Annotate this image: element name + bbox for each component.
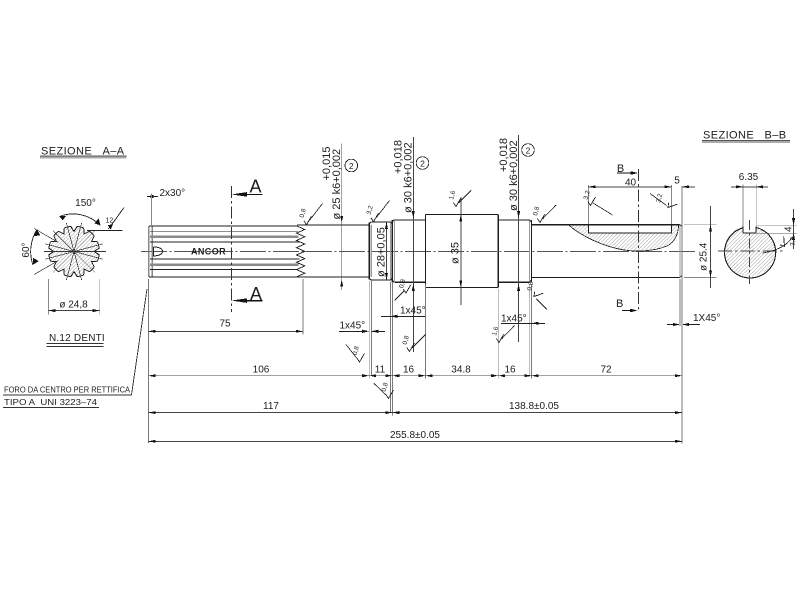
svg-text:1X45°: 1X45° [693, 313, 720, 324]
svg-text:TIPO A UNI 3223–74: TIPO A UNI 3223–74 [4, 398, 98, 407]
svg-text:72: 72 [600, 365, 612, 376]
svg-text:255.8±0.05: 255.8±0.05 [390, 430, 440, 441]
svg-text:40: 40 [625, 178, 637, 189]
svg-text:150°: 150° [75, 198, 96, 209]
svg-text:A: A [249, 177, 261, 197]
svg-text:ANCOR: ANCOR [191, 246, 226, 256]
svg-text:2: 2 [349, 161, 354, 171]
svg-text:2: 2 [526, 145, 531, 155]
svg-text:117: 117 [263, 401, 279, 412]
svg-text:34.8: 34.8 [451, 365, 471, 376]
svg-text:FORO DA CENTRO PER RETTIFICA: FORO DA CENTRO PER RETTIFICA [4, 386, 131, 395]
svg-text:+0,015: +0,015 [321, 147, 333, 181]
svg-text:1x45°: 1x45° [400, 306, 426, 317]
svg-text:106: 106 [253, 365, 270, 376]
svg-text:60°: 60° [21, 242, 32, 257]
svg-text:ø 25.4: ø 25.4 [699, 242, 710, 271]
svg-text:5: 5 [674, 176, 680, 187]
svg-text:+0,018: +0,018 [393, 140, 405, 174]
svg-text:ø 28+0,05: ø 28+0,05 [376, 227, 388, 277]
svg-text:B: B [616, 298, 623, 310]
svg-text:1x45°: 1x45° [340, 321, 366, 332]
svg-text:138.8±0.05: 138.8±0.05 [509, 401, 559, 412]
svg-text:75: 75 [219, 319, 231, 330]
svg-text:16: 16 [403, 365, 415, 376]
svg-text:16: 16 [504, 365, 516, 376]
svg-text:4: 4 [784, 226, 795, 232]
svg-text:3,2: 3,2 [790, 237, 797, 246]
svg-text:+0,018: +0,018 [498, 138, 510, 172]
svg-text:11: 11 [375, 365, 386, 376]
svg-text:2x30°: 2x30° [160, 188, 186, 199]
svg-text:ø 35: ø 35 [450, 242, 462, 264]
svg-text:ø 24,8: ø 24,8 [59, 300, 88, 311]
svg-text:12: 12 [106, 218, 114, 225]
svg-text:6.35: 6.35 [739, 172, 759, 183]
svg-text:N.12 DENTI: N.12 DENTI [49, 333, 105, 344]
svg-text:SEZIONE B–B: SEZIONE B–B [703, 130, 786, 142]
svg-text:2: 2 [420, 158, 425, 168]
